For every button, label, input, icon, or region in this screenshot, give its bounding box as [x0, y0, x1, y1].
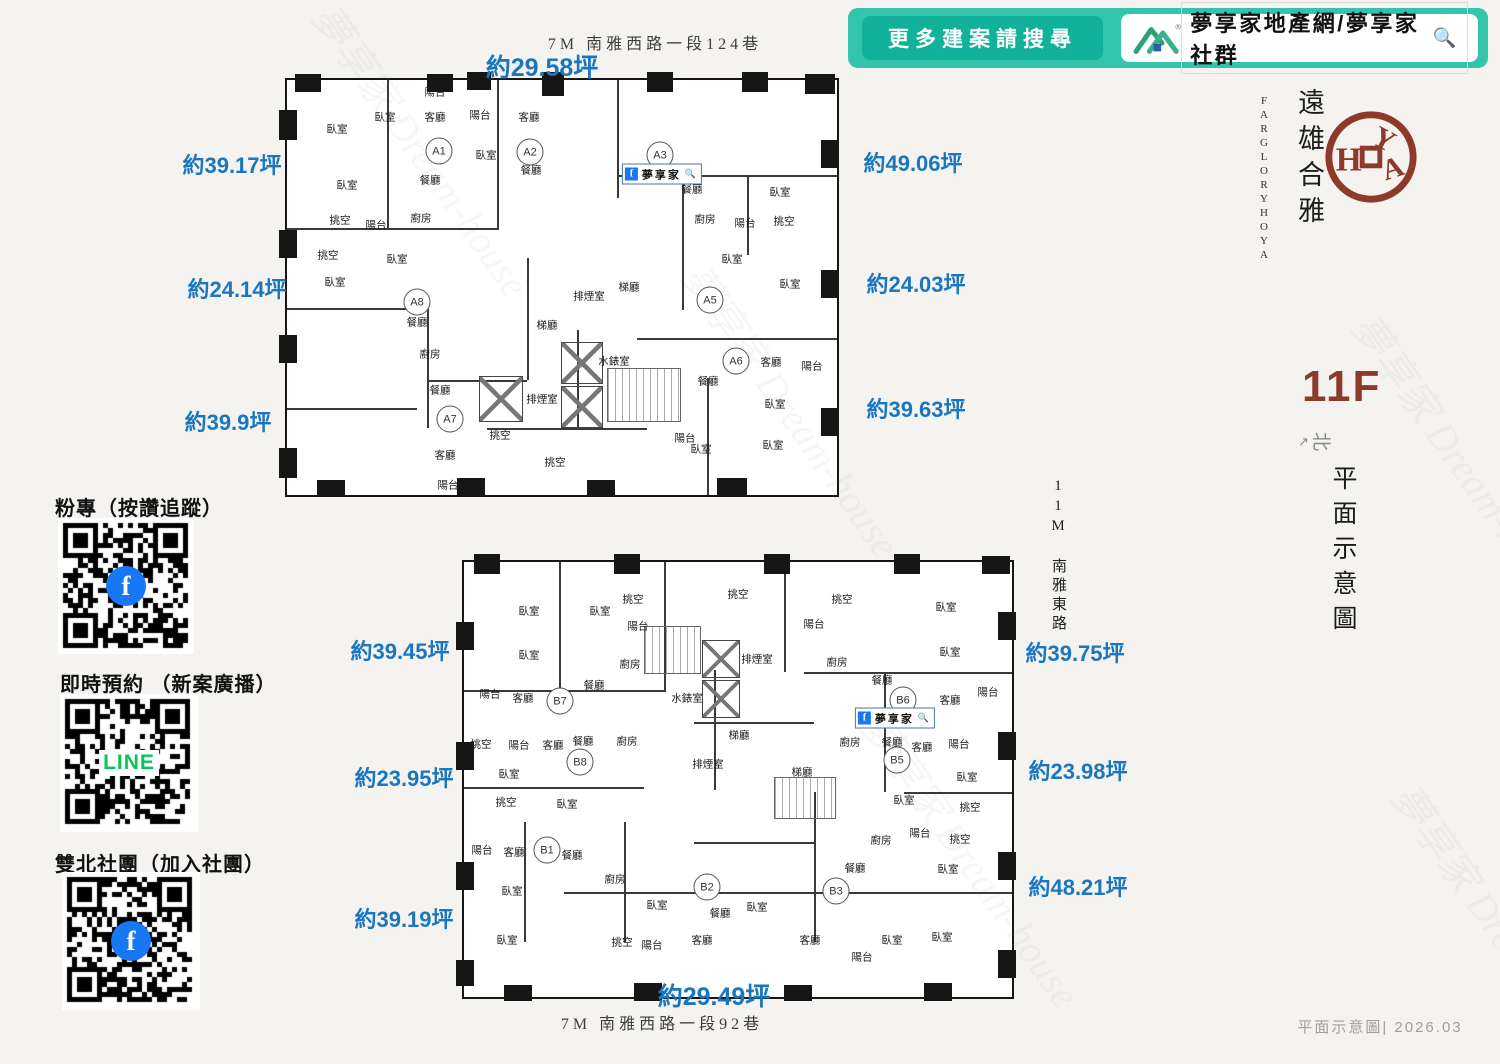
elevator-shaft	[702, 680, 740, 718]
fb-search-text: 夢享家	[875, 710, 914, 726]
floorplan-flyer-page: 更多建案請搜尋 ® 夢享家地產網/夢享家社群 🔍 FARGLORYHOYA 遠雄…	[0, 0, 1500, 1064]
room-label: 廚房	[420, 347, 441, 362]
elevator-shaft	[702, 640, 740, 678]
structural-column	[784, 985, 812, 1001]
room-label: 臥室	[557, 797, 578, 812]
unit-label: B8	[567, 749, 594, 776]
hoya-seal-logo: H Y A	[1322, 108, 1420, 206]
room-label: 陽台	[978, 685, 999, 700]
room-label: 臥室	[940, 645, 961, 660]
room-label: 陽台	[425, 85, 446, 100]
fb-search-box[interactable]: f夢享家🔍	[855, 708, 935, 729]
promo-banner: 更多建案請搜尋 ® 夢享家地產網/夢享家社群 🔍	[848, 8, 1488, 68]
room-label: 挑空	[318, 248, 339, 263]
structural-column	[587, 480, 615, 496]
watermark-text: 夢享家 Dream-house	[1340, 301, 1500, 618]
magnifier-icon: 🔍	[685, 169, 696, 180]
structural-column	[717, 478, 747, 496]
unit-label: A5	[697, 287, 724, 314]
qr-code-line[interactable]: LINE	[60, 694, 198, 832]
structural-column	[998, 732, 1016, 760]
room-label: 陽台	[804, 617, 825, 632]
room-label: 臥室	[590, 604, 611, 619]
brand-search-text: 夢享家地產網/夢享家社群	[1190, 6, 1427, 70]
unit-label: A2	[517, 139, 544, 166]
structural-column	[279, 110, 297, 140]
qr-code-facebook-group[interactable]: f	[62, 872, 200, 1010]
interior-wall	[804, 672, 1012, 674]
room-label: 臥室	[519, 604, 540, 619]
room-label: 陽台	[949, 737, 970, 752]
street-label-lower: 7M 南雅西路一段92巷	[561, 1010, 763, 1034]
fb-search-text: 夢享家	[642, 166, 681, 182]
structural-column	[742, 72, 768, 92]
structural-column	[764, 554, 790, 574]
room-label: 臥室	[882, 933, 903, 948]
stairwell	[774, 777, 836, 819]
area-size-label: 約39.19坪	[354, 902, 453, 934]
room-label: 挑空	[950, 832, 971, 847]
brand-name-english: FARGLORYHOYA	[1258, 95, 1270, 225]
room-label: 挑空	[490, 428, 511, 443]
magnifier-icon: 🔍	[1433, 26, 1459, 50]
room-label: 餐廳	[573, 734, 594, 749]
room-label: 餐廳	[698, 374, 719, 389]
interior-wall	[694, 842, 814, 844]
interior-wall	[497, 80, 499, 230]
room-label: 臥室	[957, 770, 978, 785]
interior-wall	[714, 892, 1012, 894]
area-size-label: 約39.63坪	[866, 392, 965, 424]
qr-code-facebook-page[interactable]: f	[58, 518, 194, 654]
room-label: 廚房	[620, 657, 641, 672]
area-size-label: 約49.06坪	[863, 146, 962, 178]
room-label: 廚房	[695, 212, 716, 227]
room-label: 餐廳	[407, 315, 428, 330]
room-label: 臥室	[499, 767, 520, 782]
room-label: 客廳	[504, 845, 525, 860]
room-label: 客廳	[425, 110, 446, 125]
area-size-label: 約29.49坪	[658, 977, 771, 1013]
structural-column	[998, 950, 1016, 978]
interior-wall	[487, 428, 647, 430]
room-label: 廚房	[871, 833, 892, 848]
room-label: 挑空	[612, 935, 633, 950]
room-label: 廚房	[605, 872, 626, 887]
north-indicator: ↗ 北	[1298, 428, 1332, 455]
unit-label: B5	[884, 747, 911, 774]
structural-column	[295, 74, 321, 92]
room-label: 陽台	[472, 843, 493, 858]
elevator-shaft	[561, 386, 603, 428]
room-label: 挑空	[330, 213, 351, 228]
room-label: 臥室	[519, 648, 540, 663]
room-label: 梯廳	[792, 765, 813, 780]
structural-column	[279, 448, 297, 478]
room-label: 陽台	[675, 431, 696, 446]
structural-column	[821, 140, 839, 168]
room-label: 臥室	[502, 884, 523, 899]
stairwell	[644, 626, 701, 674]
room-label: 梯廳	[537, 318, 558, 333]
interior-wall	[524, 822, 526, 942]
room-label: 挑空	[774, 214, 795, 229]
facebook-icon: f	[625, 168, 638, 181]
room-label: 陽台	[366, 218, 387, 233]
brand-search-bar[interactable]: ® 夢享家地產網/夢享家社群 🔍	[1121, 14, 1478, 62]
structural-column	[982, 556, 1010, 574]
structural-column	[894, 554, 920, 574]
structural-column	[474, 554, 500, 574]
room-label: 臥室	[387, 252, 408, 267]
room-label: 臥室	[938, 862, 959, 877]
room-label: 餐廳	[430, 383, 451, 398]
structural-column	[456, 622, 474, 650]
room-label: 臥室	[763, 438, 784, 453]
room-label: 餐廳	[584, 678, 605, 693]
interior-wall	[287, 228, 499, 230]
facebook-icon: f	[111, 921, 151, 961]
structural-column	[647, 72, 673, 92]
structural-column	[279, 230, 297, 258]
room-label: 排煙室	[692, 757, 724, 772]
structural-column	[279, 335, 297, 363]
unit-label: B1	[534, 837, 561, 864]
unit-label: A8	[404, 289, 431, 316]
room-label: 臥室	[932, 930, 953, 945]
room-label: 挑空	[832, 592, 853, 607]
room-label: 陽台	[735, 216, 756, 231]
structural-column	[998, 612, 1016, 640]
area-size-label: 約39.45坪	[350, 634, 449, 666]
area-size-label: 約23.98坪	[1028, 754, 1127, 786]
interior-wall	[637, 338, 837, 340]
qr-heading-line: 即時預約 （新案廣播）	[60, 668, 277, 697]
room-label: 臥室	[327, 122, 348, 137]
room-label: 臥室	[375, 110, 396, 125]
room-label: 陽台	[802, 359, 823, 374]
room-label: 排煙室	[573, 289, 605, 304]
structural-column	[317, 480, 345, 496]
line-icon: LINE	[99, 750, 159, 776]
room-label: 排煙室	[526, 392, 558, 407]
unit-label: A6	[723, 348, 750, 375]
room-label: 陽台	[628, 619, 649, 634]
room-label: 梯廳	[619, 280, 640, 295]
structural-column	[614, 554, 640, 574]
room-label: 陽台	[509, 738, 530, 753]
area-size-label: 約39.75坪	[1025, 636, 1124, 668]
room-label: 梯廳	[729, 728, 750, 743]
room-label: 客廳	[800, 933, 821, 948]
room-label: 臥室	[337, 178, 358, 193]
stairwell	[607, 368, 681, 422]
room-label: 客廳	[543, 738, 564, 753]
room-label: 臥室	[780, 277, 801, 292]
room-label: 臥室	[747, 900, 768, 915]
footer-note: 平面示意圖| 2026.03	[1270, 1016, 1490, 1037]
interior-wall	[617, 80, 619, 198]
structural-column	[504, 985, 532, 1001]
room-label: 臥室	[894, 793, 915, 808]
elevator-shaft	[479, 376, 523, 422]
room-label: 挑空	[545, 455, 566, 470]
structural-column	[924, 983, 952, 1001]
area-size-label: 約39.9坪	[185, 405, 272, 437]
dreamhouse-logo-icon: ®	[1131, 16, 1181, 60]
structural-column	[456, 862, 474, 890]
interior-wall	[694, 722, 814, 724]
room-label: 陽台	[642, 938, 663, 953]
floor-plan-upper: 陽台臥室臥室客廳陽台客廳臥室餐廳餐廳臥室臥室餐廳廚房陽台挑空廚房陽台挑空挑空臥室…	[285, 78, 839, 497]
room-label: 餐廳	[420, 173, 441, 188]
interior-wall	[884, 672, 886, 792]
room-label: 排煙室	[741, 652, 773, 667]
room-label: 挑空	[623, 592, 644, 607]
elevator-shaft	[561, 342, 603, 384]
fb-search-box[interactable]: f夢享家🔍	[622, 164, 702, 185]
room-label: 臥室	[497, 933, 518, 948]
floor-plan-lower: 臥室臥室挑空挑空挑空陽台陽台臥室臥室臥室廚房排煙室廚房餐廳客廳陽台水錶室餐廳客廳…	[462, 560, 1014, 999]
room-label: 陽台	[852, 950, 873, 965]
room-label: 臥室	[647, 898, 668, 913]
room-label: 客廳	[940, 693, 961, 708]
room-label: 客廳	[519, 110, 540, 125]
unit-label: A1	[426, 138, 453, 165]
svg-text:A: A	[1378, 150, 1409, 187]
street-label-upper: 7M 南雅西路一段124巷	[548, 30, 762, 54]
room-label: 陽台	[910, 826, 931, 841]
interior-wall	[387, 80, 389, 230]
room-label: 臥室	[722, 252, 743, 267]
room-label: 廚房	[840, 735, 861, 750]
room-label: 餐廳	[872, 673, 893, 688]
plan-caption-vertical: 平面示意圖	[1324, 465, 1360, 640]
more-projects-button[interactable]: 更多建案請搜尋	[862, 16, 1103, 60]
room-label: 廚房	[827, 655, 848, 670]
area-size-label: 約24.14坪	[187, 272, 286, 304]
facebook-icon: f	[858, 712, 871, 725]
room-label: 陽台	[438, 478, 459, 493]
interior-wall	[564, 892, 714, 894]
interior-wall	[904, 792, 1012, 794]
room-label: 客廳	[692, 933, 713, 948]
structural-column	[805, 74, 835, 94]
east-road-label: 11M 南雅東路	[1048, 478, 1069, 634]
structural-column	[821, 270, 839, 298]
structural-column	[998, 852, 1016, 880]
svg-text:H: H	[1336, 142, 1362, 179]
unit-label: B3	[823, 878, 850, 905]
floor-number: 11F	[1302, 362, 1381, 412]
room-label: 臥室	[765, 397, 786, 412]
room-label: 臥室	[325, 275, 346, 290]
area-size-label: 約23.95坪	[354, 761, 453, 793]
interior-wall	[784, 562, 786, 672]
structural-column	[456, 960, 474, 986]
room-label: 陽台	[470, 108, 491, 123]
facebook-icon: f	[106, 566, 146, 606]
interior-wall	[464, 787, 644, 789]
room-label: 臥室	[476, 148, 497, 163]
area-size-label: 約39.17坪	[182, 148, 281, 180]
room-label: 挑空	[728, 587, 749, 602]
room-label: 臥室	[936, 600, 957, 615]
interior-wall	[707, 378, 709, 495]
qr-heading-fanpage: 粉專（按讚追蹤）	[55, 492, 223, 521]
interior-wall	[527, 258, 529, 380]
area-size-label: 約48.21坪	[1028, 870, 1127, 902]
room-label: 廚房	[617, 734, 638, 749]
area-size-label: 約24.03坪	[866, 267, 965, 299]
unit-label: A7	[437, 406, 464, 433]
room-label: 客廳	[513, 691, 534, 706]
unit-label: B7	[547, 688, 574, 715]
room-label: 挑空	[471, 737, 492, 752]
interior-wall	[287, 408, 417, 410]
room-label: 客廳	[912, 740, 933, 755]
room-label: 陽台	[480, 687, 501, 702]
unit-label: B2	[694, 874, 721, 901]
room-label: 客廳	[761, 355, 782, 370]
room-label: 臥室	[770, 185, 791, 200]
room-label: 挑空	[496, 795, 517, 810]
room-label: 水錶室	[598, 354, 630, 369]
room-label: 挑空	[960, 800, 981, 815]
room-label: 水錶室	[671, 691, 703, 706]
structural-column	[457, 478, 485, 496]
room-label: 餐廳	[845, 861, 866, 876]
room-label: 餐廳	[562, 848, 583, 863]
structural-column	[821, 408, 839, 436]
magnifier-icon: 🔍	[918, 713, 929, 724]
interior-wall	[559, 562, 561, 692]
room-label: 餐廳	[710, 906, 731, 921]
room-label: 客廳	[435, 448, 456, 463]
room-label: 廚房	[411, 211, 432, 226]
